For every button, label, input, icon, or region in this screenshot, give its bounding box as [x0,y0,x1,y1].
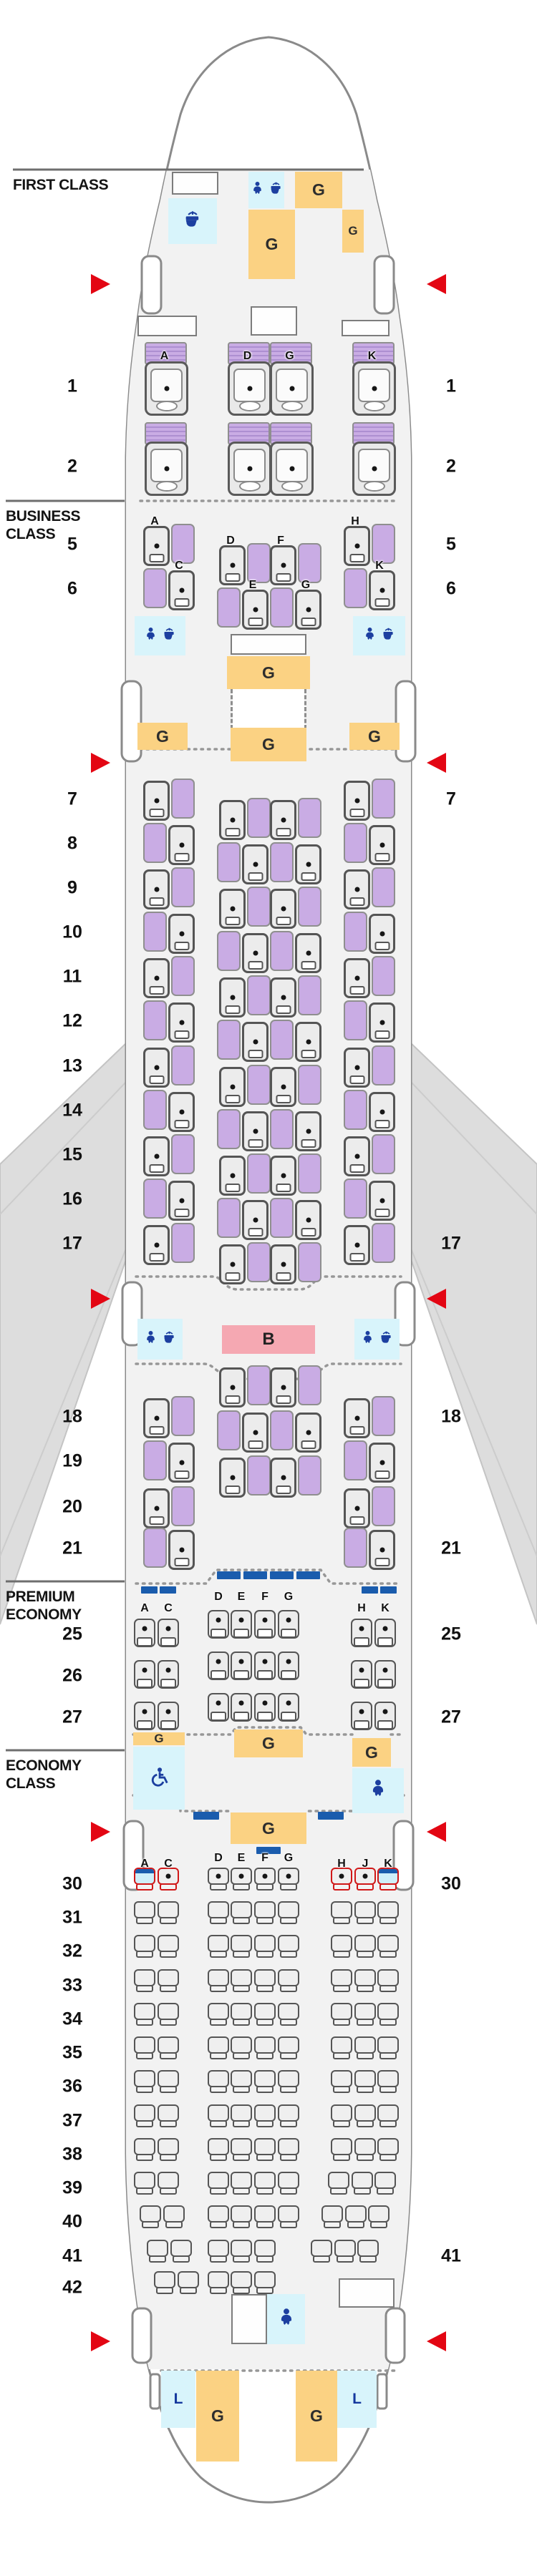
seat-20D[interactable] [219,1455,271,1498]
seat-39C[interactable] [158,2172,179,2195]
seat-shell[interactable] [143,781,170,821]
seat-shell[interactable] [168,1443,195,1483]
seat-shell[interactable] [270,977,296,1018]
seat-11H[interactable] [344,956,395,998]
seat-40J[interactable] [345,2205,367,2228]
seat-14K[interactable] [344,1090,395,1132]
seat-40C[interactable] [163,2205,185,2228]
seat-shell[interactable] [143,958,170,998]
seat-bed [344,1440,367,1480]
seat-36E[interactable] [231,2070,252,2093]
seat-27C[interactable] [158,1702,179,1730]
seat-shell[interactable] [270,1458,296,1498]
seat-39F[interactable] [254,2172,276,2195]
seat-6E[interactable] [217,587,268,630]
seat-38D[interactable] [208,2138,229,2161]
seat-31G[interactable] [278,1901,299,1924]
seat-bed [270,931,294,971]
seat-33J[interactable] [354,1969,376,1992]
seat-35E[interactable] [231,2036,252,2059]
seat-35H[interactable] [331,2036,352,2059]
seat-shell[interactable] [242,933,268,973]
seat-shell[interactable] [344,1398,370,1438]
seat-shell[interactable] [143,1488,170,1528]
seat-31D[interactable] [208,1901,229,1924]
seat-17A[interactable] [143,1223,195,1265]
seat-shell[interactable] [369,1181,395,1221]
seat-shell[interactable] [369,1530,395,1570]
seat-shell[interactable] [219,1156,246,1196]
seat-33G[interactable] [278,1969,299,1992]
seat-39A[interactable] [134,2172,155,2195]
seat-12K[interactable] [344,1000,395,1043]
seat-32K[interactable] [377,1935,399,1958]
seat-shell[interactable] [295,590,321,630]
seat-shell[interactable] [219,1244,246,1284]
seat-20A[interactable] [143,1486,195,1528]
seat-8E[interactable] [217,842,268,884]
seat-31C[interactable] [158,1901,179,1924]
seat-6K[interactable] [344,568,395,610]
seat-41E[interactable] [231,2240,252,2263]
seat-25H[interactable] [351,1619,372,1647]
seat-40K[interactable] [368,2205,390,2228]
seat-shell[interactable] [242,590,268,630]
closet [251,306,297,336]
seat-6G[interactable] [270,587,321,630]
seat-36C[interactable] [158,2070,179,2093]
seat-30J[interactable] [354,1868,376,1890]
seat-13F[interactable] [270,1065,321,1107]
seat-2D[interactable] [228,441,271,496]
seat-2G[interactable] [270,441,314,496]
seat-42F[interactable] [254,2271,276,2294]
seat-10E[interactable] [217,931,268,973]
seat-39D[interactable] [208,2172,229,2195]
seat-33K[interactable] [377,1969,399,1992]
seat-5F[interactable] [270,543,321,585]
seat-1A[interactable] [145,361,188,416]
seat-shell[interactable] [270,1244,296,1284]
seat-13A[interactable] [143,1045,195,1088]
seat-32H[interactable] [331,1935,352,1958]
seat-17D[interactable] [219,1242,271,1284]
seat-5H[interactable] [344,524,395,566]
seat-42D[interactable] [208,2271,229,2294]
seat-9D[interactable] [219,887,271,929]
seat-25D[interactable] [208,1610,229,1639]
seat-shell[interactable] [295,933,321,973]
seat-41C[interactable] [170,2240,192,2263]
seat-shell[interactable] [344,1488,370,1528]
seat-16C[interactable] [143,1179,195,1221]
section-label-first-class: FIRST CLASS [13,176,108,194]
seat-27D[interactable] [208,1693,229,1722]
seat-33H[interactable] [331,1969,352,1992]
seat-37F[interactable] [254,2104,276,2127]
seat-shell[interactable] [295,1200,321,1240]
seat-26A[interactable] [134,1660,155,1689]
seat-34E[interactable] [231,2003,252,2026]
seat-bed [217,1198,241,1238]
seat-19K[interactable] [344,1440,395,1483]
seat-shell[interactable] [219,1458,246,1498]
bulkhead-screen-panel [362,1586,378,1594]
seat-18F[interactable] [270,1365,321,1407]
seat-shell[interactable] [168,1181,195,1221]
seat-shell[interactable] [270,1156,296,1196]
seat-25G[interactable] [278,1610,299,1639]
seat-1D[interactable] [228,361,271,416]
seat-20H[interactable] [344,1486,395,1528]
seat-38K[interactable] [377,2138,399,2161]
seat-15D[interactable] [219,1153,271,1196]
seat-31J[interactable] [354,1901,376,1924]
seat-37G[interactable] [278,2104,299,2127]
seat-25A[interactable] [134,1619,155,1647]
row-number-left-33: 33 [52,1976,92,1996]
seat-40E[interactable] [231,2205,252,2228]
seat-35D[interactable] [208,2036,229,2059]
seat-34G[interactable] [278,2003,299,2026]
seat-39H[interactable] [328,2172,349,2195]
seat-41D[interactable] [208,2240,229,2263]
seat-40G[interactable] [278,2205,299,2228]
seat-6C[interactable] [143,568,195,610]
row-number-left-7: 7 [52,789,92,810]
seat-33C[interactable] [158,1969,179,1992]
seat-shell[interactable] [219,1367,246,1407]
seat-14E[interactable] [217,1109,268,1151]
seat-18H[interactable] [344,1396,395,1438]
seat-25K[interactable] [374,1619,396,1647]
seat-27H[interactable] [351,1702,372,1730]
seat-36G[interactable] [278,2070,299,2093]
seat-27K[interactable] [374,1702,396,1730]
row-number-left-9: 9 [52,878,92,899]
seat-25C[interactable] [158,1619,179,1647]
seat-bed [298,543,321,583]
seat-35G[interactable] [278,2036,299,2059]
seat-19C[interactable] [143,1440,195,1483]
seat-33E[interactable] [231,1969,252,1992]
seat-bed [298,1153,321,1194]
seat-34D[interactable] [208,2003,229,2026]
seat-shell[interactable] [168,570,195,610]
seat-41K[interactable] [357,2240,379,2263]
seat-10G[interactable] [270,931,321,973]
seat-36H[interactable] [331,2070,352,2093]
seat-shell[interactable] [344,1225,370,1265]
column-letter: H [337,1858,346,1870]
seat-39E[interactable] [231,2172,252,2195]
seat-shell[interactable] [344,781,370,821]
seat-16G[interactable] [270,1198,321,1240]
seat-shell[interactable] [168,1530,195,1570]
seat-37J[interactable] [354,2104,376,2127]
seat-37D[interactable] [208,2104,229,2127]
seat-26G[interactable] [278,1652,299,1680]
seat-41A[interactable] [147,2240,168,2263]
seat-shell[interactable] [369,1092,395,1132]
seat-shell[interactable] [168,1092,195,1132]
seat-shell[interactable] [143,1398,170,1438]
seat-37H[interactable] [331,2104,352,2127]
seat-shell[interactable] [168,914,195,954]
seat-shell[interactable] [344,958,370,998]
seat-38J[interactable] [354,2138,376,2161]
seat-30A[interactable] [134,1868,155,1890]
seat-shell[interactable] [270,889,296,929]
seat-31A[interactable] [134,1901,155,1924]
seat-41J[interactable] [334,2240,356,2263]
seat-8G[interactable] [270,842,321,884]
seat-26F[interactable] [254,1652,276,1680]
seat-shell[interactable] [295,1022,321,1062]
seat-shell[interactable] [143,869,170,909]
seat-26C[interactable] [158,1660,179,1689]
accessible-lavatory-icon [149,1767,169,1790]
seat-30D[interactable] [208,1868,229,1890]
seat-shell[interactable] [242,1022,268,1062]
seat-41H[interactable] [311,2240,332,2263]
seat-25F[interactable] [254,1610,276,1639]
seat-15A[interactable] [143,1134,195,1176]
seat-7D[interactable] [219,798,271,840]
seat-16E[interactable] [217,1198,268,1240]
seat-17F[interactable] [270,1242,321,1284]
seat-21K[interactable] [344,1528,395,1570]
seat-shell[interactable] [168,1002,195,1043]
seat-27A[interactable] [134,1702,155,1730]
seat-36K[interactable] [377,2070,399,2093]
seat-9F[interactable] [270,887,321,929]
seat-39G[interactable] [278,2172,299,2195]
seat-shell[interactable] [270,1367,296,1407]
seat-25E[interactable] [231,1610,252,1639]
seat-shell[interactable] [242,1111,268,1151]
seat-30G[interactable] [278,1868,299,1890]
seat-2A[interactable] [145,441,188,496]
seat-shell[interactable] [143,526,170,566]
seat-40F[interactable] [254,2205,276,2228]
seat-11D[interactable] [219,975,271,1018]
seat-10C[interactable] [143,912,195,954]
seat-8C[interactable] [143,823,195,865]
seat-36J[interactable] [354,2070,376,2093]
seat-shell[interactable] [242,1413,268,1453]
seat-39K[interactable] [374,2172,396,2195]
seat-shell[interactable] [295,1111,321,1151]
seat-21C[interactable] [143,1528,195,1570]
seat-shell[interactable] [295,1413,321,1453]
seat-35J[interactable] [354,2036,376,2059]
seat-27F[interactable] [254,1693,276,1722]
seat-shell[interactable] [219,545,246,585]
seat-7A[interactable] [143,779,195,821]
seat-42E[interactable] [231,2271,252,2294]
seat-33A[interactable] [134,1969,155,1992]
seat-32F[interactable] [254,1935,276,1958]
baby-care-icon [143,1330,158,1349]
seat-17H[interactable] [344,1223,395,1265]
seat-13D[interactable] [219,1065,271,1107]
seat-40H[interactable] [321,2205,343,2228]
row-number-left-36: 36 [52,2077,92,2097]
seat-30E[interactable] [231,1868,252,1890]
seat-shell[interactable] [242,844,268,884]
seat-shell[interactable] [369,570,395,610]
row-number-left-32: 32 [52,1941,92,1962]
seat-shell[interactable] [219,889,246,929]
seat-7H[interactable] [344,779,395,821]
seat-30C[interactable] [158,1868,179,1890]
seat-bed [143,1528,167,1568]
seat-31H[interactable] [331,1901,352,1924]
seat-5D[interactable] [219,543,271,585]
seat-26E[interactable] [231,1652,252,1680]
column-letter: C [164,1858,173,1870]
seat-30H[interactable] [331,1868,352,1890]
seat-1K[interactable] [352,361,396,416]
seat-31K[interactable] [377,1901,399,1924]
lavatory [168,198,217,244]
seat-12E[interactable] [217,1020,268,1062]
seat-18A[interactable] [143,1396,195,1438]
seat-32A[interactable] [134,1935,155,1958]
seat-30K[interactable] [377,1868,399,1890]
seat-shell[interactable] [143,1048,170,1088]
seat-31E[interactable] [231,1901,252,1924]
row-number-left-26: 26 [52,1666,92,1687]
seat-shell[interactable] [270,1067,296,1107]
seat-18D[interactable] [219,1365,271,1407]
seat-30F[interactable] [254,1868,276,1890]
seat-shell[interactable] [219,977,246,1018]
baby-care-icon [143,627,158,645]
seat-32J[interactable] [354,1935,376,1958]
seat-37A[interactable] [134,2104,155,2127]
seat-shell[interactable] [168,825,195,865]
seat-14G[interactable] [270,1109,321,1151]
seat-27G[interactable] [278,1693,299,1722]
seat-shell[interactable] [344,869,370,909]
seat-15H[interactable] [344,1134,395,1176]
seat-36A[interactable] [134,2070,155,2093]
seat-9H[interactable] [344,867,395,909]
seat-12C[interactable] [143,1000,195,1043]
seat-2K[interactable] [352,441,396,496]
seat-shell[interactable] [344,1136,370,1176]
seat-26K[interactable] [374,1660,396,1689]
seat-40D[interactable] [208,2205,229,2228]
seat-35A[interactable] [134,2036,155,2059]
seat-34K[interactable] [377,2003,399,2026]
seat-38E[interactable] [231,2138,252,2161]
seat-34J[interactable] [354,2003,376,2026]
seat-16K[interactable] [344,1179,395,1221]
seat-40A[interactable] [140,2205,161,2228]
seat-12G[interactable] [270,1020,321,1062]
seat-20F[interactable] [270,1455,321,1498]
seat-39J[interactable] [352,2172,373,2195]
seat-34F[interactable] [254,2003,276,2026]
seat-shell[interactable] [143,1136,170,1176]
seat-5A[interactable] [143,524,195,566]
seat-shell[interactable] [270,800,296,840]
seat-shell[interactable] [143,1225,170,1265]
seat-1G[interactable] [270,361,314,416]
seat-42A[interactable] [154,2271,175,2294]
seat-37C[interactable] [158,2104,179,2127]
seat-31F[interactable] [254,1901,276,1924]
seat-15F[interactable] [270,1153,321,1196]
seat-41F[interactable] [254,2240,276,2263]
seat-35C[interactable] [158,2036,179,2059]
seat-33D[interactable] [208,1969,229,1992]
seat-shell[interactable] [369,1002,395,1043]
seat-shell[interactable] [242,1200,268,1240]
seat-32E[interactable] [231,1935,252,1958]
seat-34H[interactable] [331,2003,352,2026]
seat-38A[interactable] [134,2138,155,2161]
seat-38G[interactable] [278,2138,299,2161]
seat-14C[interactable] [143,1090,195,1132]
seat-11A[interactable] [143,956,195,998]
seat-7F[interactable] [270,798,321,840]
seat-26D[interactable] [208,1652,229,1680]
seat-34A[interactable] [134,2003,155,2026]
seat-shell[interactable] [369,825,395,865]
seat-36D[interactable] [208,2070,229,2093]
galley: G [133,1732,185,1745]
seat-shell[interactable] [369,914,395,954]
seat-shell[interactable] [219,1067,246,1107]
seat-38C[interactable] [158,2138,179,2161]
seat-32C[interactable] [158,1935,179,1958]
seat-shell[interactable] [270,545,296,585]
seat-9A[interactable] [143,867,195,909]
seat-32G[interactable] [278,1935,299,1958]
seat-26H[interactable] [351,1660,372,1689]
seat-shell[interactable] [344,526,370,566]
seat-36F[interactable] [254,2070,276,2093]
seat-11F[interactable] [270,975,321,1018]
seat-shell[interactable] [219,800,246,840]
seat-27E[interactable] [231,1693,252,1722]
seat-shell[interactable] [295,844,321,884]
seat-32D[interactable] [208,1935,229,1958]
seat-33F[interactable] [254,1969,276,1992]
seat-35K[interactable] [377,2036,399,2059]
seat-10K[interactable] [344,912,395,954]
seat-bed [344,823,367,863]
seat-19G[interactable] [270,1410,321,1453]
seat-38H[interactable] [331,2138,352,2161]
column-letter: D [214,1591,223,1604]
seat-42C[interactable] [178,2271,199,2294]
seat-13H[interactable] [344,1045,395,1088]
seat-37E[interactable] [231,2104,252,2127]
seat-34C[interactable] [158,2003,179,2026]
seat-shell[interactable] [344,1048,370,1088]
seat-38F[interactable] [254,2138,276,2161]
seat-8K[interactable] [344,823,395,865]
seat-35F[interactable] [254,2036,276,2059]
seat-37K[interactable] [377,2104,399,2127]
seat-19E[interactable] [217,1410,268,1453]
seat-shell[interactable] [369,1443,395,1483]
